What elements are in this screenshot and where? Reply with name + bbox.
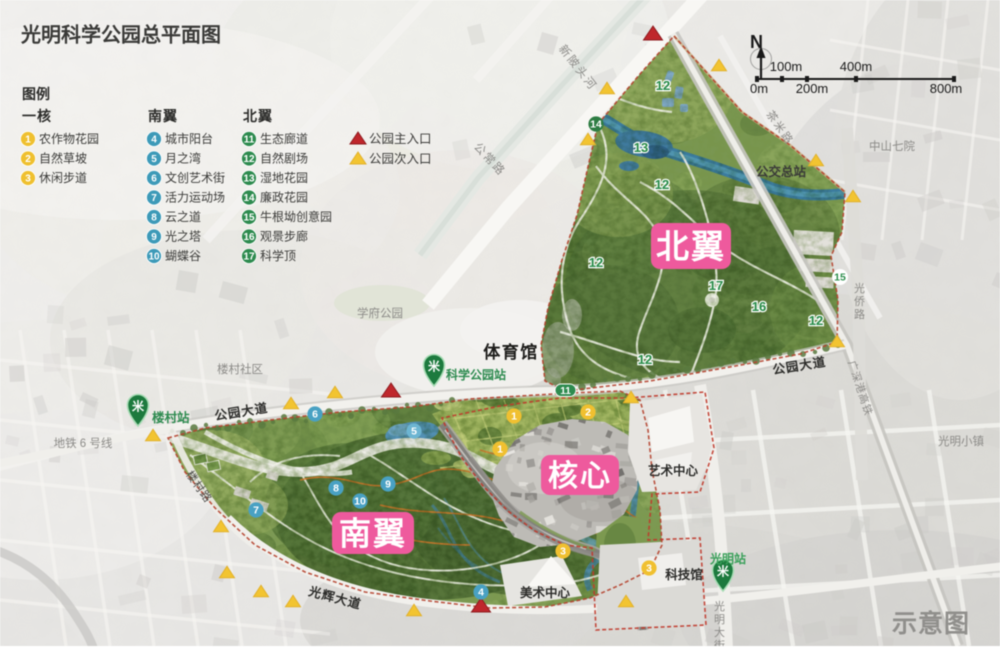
svg-text:光: 光 xyxy=(714,599,725,613)
svg-text:活力运动场: 活力运动场 xyxy=(165,191,225,205)
svg-text:1: 1 xyxy=(511,411,517,423)
svg-text:13: 13 xyxy=(634,140,648,155)
svg-text:5: 5 xyxy=(151,154,157,165)
svg-text:体育馆: 体育馆 xyxy=(483,342,539,362)
svg-text:3: 3 xyxy=(25,173,31,184)
svg-text:蝴蝶谷: 蝴蝶谷 xyxy=(165,248,201,263)
svg-text:光之塔: 光之塔 xyxy=(165,230,201,244)
svg-text:17: 17 xyxy=(709,278,723,293)
svg-text:学府公园: 学府公园 xyxy=(357,306,403,320)
svg-text:北翼: 北翼 xyxy=(243,108,273,124)
svg-text:16: 16 xyxy=(752,299,766,314)
svg-text:4: 4 xyxy=(478,587,484,599)
svg-text:公交总站: 公交总站 xyxy=(756,164,807,179)
svg-text:12: 12 xyxy=(638,352,652,367)
svg-text:14: 14 xyxy=(590,119,602,131)
svg-text:生态廊道: 生态廊道 xyxy=(260,131,308,146)
svg-text:10: 10 xyxy=(354,496,366,508)
svg-text:8: 8 xyxy=(333,483,339,495)
svg-text:12: 12 xyxy=(243,154,255,165)
svg-text:15: 15 xyxy=(834,272,846,284)
svg-text:6: 6 xyxy=(151,173,157,184)
svg-text:11: 11 xyxy=(244,134,255,145)
svg-text:17: 17 xyxy=(243,251,255,262)
svg-text:示意图: 示意图 xyxy=(892,609,970,638)
svg-text:楼村站: 楼村站 xyxy=(152,410,190,425)
svg-text:2: 2 xyxy=(585,407,591,419)
svg-text:侨: 侨 xyxy=(854,295,865,308)
svg-text:美术中心: 美术中心 xyxy=(520,585,571,600)
svg-text:米: 米 xyxy=(132,399,145,414)
svg-text:3: 3 xyxy=(646,563,652,575)
svg-text:光明小镇: 光明小镇 xyxy=(938,434,984,448)
svg-text:光明站: 光明站 xyxy=(709,551,746,566)
svg-text:自然剧场: 自然剧场 xyxy=(260,151,308,166)
svg-text:观景步廊: 观景步廊 xyxy=(260,229,308,244)
svg-text:10: 10 xyxy=(148,251,160,262)
svg-text:0m: 0m xyxy=(750,81,768,96)
svg-text:路: 路 xyxy=(854,308,865,321)
svg-text:文创艺术街: 文创艺术街 xyxy=(165,170,225,185)
svg-text:800m: 800m xyxy=(930,81,963,96)
svg-text:光明科学公园总平面图: 光明科学公园总平面图 xyxy=(20,23,221,47)
svg-text:13: 13 xyxy=(243,173,255,184)
svg-text:11: 11 xyxy=(560,386,571,397)
svg-text:云之道: 云之道 xyxy=(165,210,201,224)
svg-text:北翼: 北翼 xyxy=(656,228,726,265)
svg-text:2: 2 xyxy=(25,154,31,165)
svg-text:7: 7 xyxy=(253,505,259,517)
svg-text:12: 12 xyxy=(589,255,603,270)
svg-text:100m: 100m xyxy=(770,59,803,74)
svg-text:农作物花园: 农作物花园 xyxy=(39,131,99,146)
svg-text:1: 1 xyxy=(25,134,31,145)
svg-text:休闲步道: 休闲步道 xyxy=(39,171,87,185)
svg-text:科学顶: 科学顶 xyxy=(260,248,296,263)
svg-text:6: 6 xyxy=(312,409,318,421)
svg-text:大: 大 xyxy=(714,625,725,639)
svg-text:9: 9 xyxy=(385,479,391,491)
svg-text:200m: 200m xyxy=(796,81,829,96)
svg-text:7: 7 xyxy=(151,193,157,204)
svg-text:光: 光 xyxy=(854,281,865,295)
svg-text:4: 4 xyxy=(151,134,157,145)
svg-text:南翼: 南翼 xyxy=(148,108,178,124)
svg-text:米: 米 xyxy=(428,359,441,374)
svg-text:城市阳台: 城市阳台 xyxy=(165,131,213,146)
svg-text:湿地花园: 湿地花园 xyxy=(260,170,308,185)
svg-text:1: 1 xyxy=(497,444,503,456)
svg-text:15: 15 xyxy=(243,212,255,223)
svg-text:明: 明 xyxy=(714,613,725,626)
svg-text:8: 8 xyxy=(151,212,157,223)
svg-text:12: 12 xyxy=(809,313,823,328)
svg-text:公园次入口: 公园次入口 xyxy=(369,152,432,166)
svg-text:科技馆: 科技馆 xyxy=(665,567,703,582)
svg-text:牛根坳创意园: 牛根坳创意园 xyxy=(260,209,332,224)
svg-text:廉政花园: 廉政花园 xyxy=(260,190,308,205)
svg-text:地铁 6 号线: 地铁 6 号线 xyxy=(54,436,113,450)
svg-text:南翼: 南翼 xyxy=(339,516,407,552)
svg-text:14: 14 xyxy=(243,193,255,204)
svg-text:月之湾: 月之湾 xyxy=(165,151,201,166)
svg-text:中山七院: 中山七院 xyxy=(869,139,915,153)
svg-text:科学公园站: 科学公园站 xyxy=(446,367,506,382)
svg-text:一核: 一核 xyxy=(22,108,52,124)
svg-text:公园主入口: 公园主入口 xyxy=(369,132,432,146)
svg-text:楼村社区: 楼村社区 xyxy=(217,362,263,376)
svg-text:16: 16 xyxy=(243,232,255,243)
svg-text:图例: 图例 xyxy=(22,86,50,102)
svg-text:自然草坡: 自然草坡 xyxy=(39,151,87,166)
svg-text:5: 5 xyxy=(411,426,417,438)
svg-text:400m: 400m xyxy=(840,59,873,74)
svg-text:3: 3 xyxy=(560,546,566,558)
svg-text:12: 12 xyxy=(655,177,669,192)
svg-text:12: 12 xyxy=(656,78,670,93)
svg-text:街: 街 xyxy=(714,638,725,646)
svg-text:核心: 核心 xyxy=(548,460,612,493)
svg-text:9: 9 xyxy=(151,232,157,243)
svg-text:艺术中心: 艺术中心 xyxy=(648,463,699,478)
